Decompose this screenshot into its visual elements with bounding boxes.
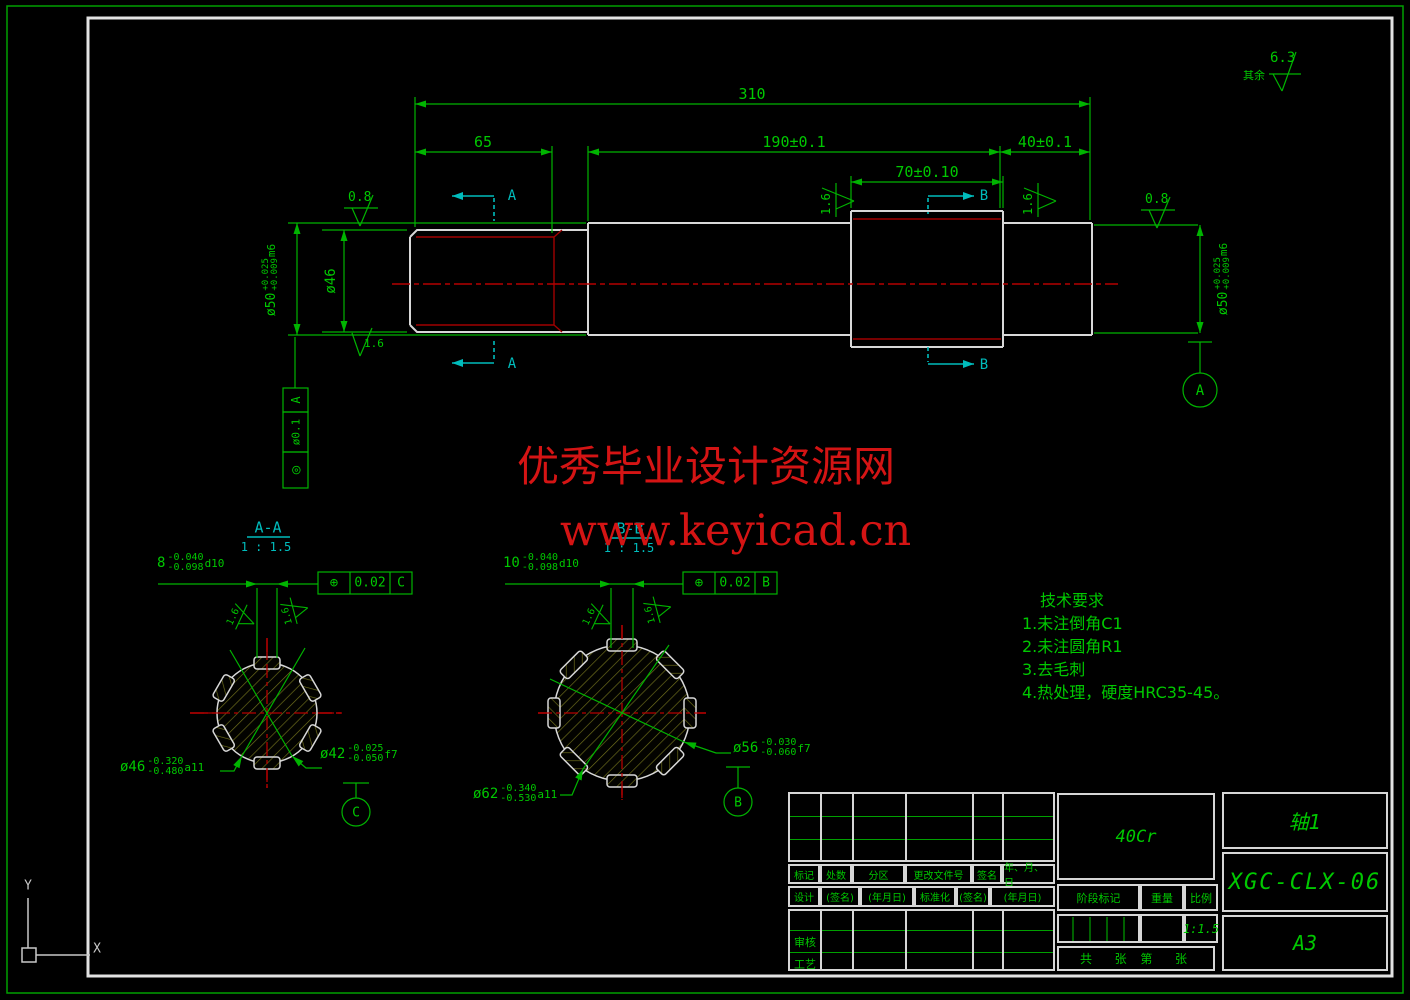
scale-header: 比例 [1184, 884, 1218, 911]
roughness-left-journal: 0.8 [348, 191, 371, 204]
tech-requirement-item: 1.未注倒角C1 [1022, 612, 1229, 635]
ucs-y-label: Y [24, 880, 32, 893]
tech-requirement-item: 3.去毛刺 [1022, 658, 1229, 681]
tech-requirements: 技术要求 1.未注倒角C1 2.未注圆角R1 3.去毛刺 4.热处理，硬度HRC… [1022, 589, 1229, 704]
weight-value [1140, 914, 1184, 943]
sheet-count-cell: 共 张 第 张 [1057, 946, 1215, 971]
section-a-fcf-value: 0.02 [354, 577, 385, 590]
section-a-dia-root: ø42 -0.025 -0.050 f7 [320, 744, 398, 764]
tech-requirements-title: 技术要求 [1040, 589, 1229, 612]
dia50-base: ø50 [265, 293, 278, 316]
section-b-fcf-datum: B [762, 577, 770, 590]
sign-col: (年月日) [860, 886, 914, 907]
default-roughness-value: 6.3 [1270, 51, 1295, 65]
concentricity-icon: ◎ [289, 466, 303, 474]
stage-mark-value [1057, 914, 1140, 943]
dim-dia50-left: ø50 +0.025 +0.009 m6 [262, 244, 280, 316]
rev-col-header: 年、月、日 [1002, 864, 1055, 884]
rev-col-header: 处数 [820, 864, 852, 884]
dim-dia50-right: ø50 +0.025 +0.009 m6 [1214, 243, 1232, 315]
dia50-tolerance: +0.025 +0.009 [262, 258, 280, 291]
section-a-title: A-A [254, 521, 281, 536]
section-b-keyway-dim: 10 -0.040 -0.098 d10 [503, 553, 579, 573]
roughness-symbol-section-b-2: 1.6 [641, 593, 674, 626]
section-b-dia-outer: ø62 -0.340 -0.530 a11 [473, 784, 557, 804]
datum-c-label: C [352, 807, 360, 820]
section-a-dia-outer: ø46 -0.320 -0.480 a11 [120, 757, 204, 777]
cut-label-b-bottom: B [980, 358, 988, 372]
material-cell: 40Cr [1057, 793, 1215, 880]
watermark-site-name: 优秀毕业设计资源网 [517, 433, 895, 494]
shaft-outline [410, 211, 1092, 347]
rev-col-header: 标记 [788, 864, 820, 884]
roughness-symbol-spline-right: 1.6 [1021, 183, 1056, 217]
datum-b-label: B [734, 797, 742, 810]
sign-col: (年月日) [990, 886, 1055, 907]
tech-requirement-item: 4.热处理，硬度HRC35-45。 [1022, 681, 1229, 704]
process-label: 工艺 [794, 956, 816, 972]
dim-overall-length: 310 [738, 87, 765, 102]
dim-dia46: ø46 [324, 268, 338, 293]
check-label: 审核 [794, 934, 816, 950]
roughness-symbol-spline-left: 1.6 [819, 183, 854, 217]
shaft-spline-lines [416, 219, 1001, 339]
part-name-cell: 轴1 [1222, 792, 1388, 849]
watermark-site-url: www.keyicad.cn [560, 506, 911, 556]
revision-table [788, 792, 1055, 862]
dim-left-segment: 65 [474, 135, 492, 150]
sign-col: 设计 [788, 886, 820, 907]
weight-header: 重量 [1140, 884, 1184, 911]
sheet-size-cell: A3 [1222, 915, 1388, 971]
rev-col-header: 签名 [972, 864, 1002, 884]
section-a-fcf-datum: C [397, 577, 405, 590]
stage-mark-header: 阶段标记 [1057, 884, 1140, 911]
approval-rows: 审核 工艺 [788, 909, 1055, 971]
cut-label-a-bottom: A [508, 357, 516, 371]
runout-datum-ref: A [290, 396, 302, 403]
position-icon: ⊕ [695, 576, 703, 590]
roughness-symbol-section-a-2: 1.6 [278, 594, 311, 627]
default-roughness-prefix: 其余 [1243, 70, 1265, 81]
ucs-x-label: X [93, 943, 101, 956]
roughness-right-journal: 0.8 [1145, 193, 1168, 206]
scale-value: 1:1.5 [1184, 914, 1218, 943]
section-a-keyway-dim: 8 -0.040 -0.098 d10 [157, 553, 224, 573]
sign-col: (签名) [956, 886, 990, 907]
svg-text:1.6: 1.6 [819, 193, 833, 215]
dim-spline-length: 70±0.10 [895, 165, 958, 180]
runout-value: ø0.1 [291, 419, 302, 446]
dim-right-segment: 40±0.1 [1018, 135, 1072, 150]
position-icon: ⊕ [330, 576, 338, 590]
svg-text:1.6: 1.6 [1021, 193, 1035, 215]
ucs-icon [22, 898, 90, 962]
section-b-dia-root: ø56 -0.030 -0.060 f7 [733, 738, 811, 758]
tech-requirement-item: 2.未注圆角R1 [1022, 635, 1229, 658]
datum-a-label: A [1196, 384, 1204, 398]
roughness-symbol-section-a-1: 1.6 [224, 599, 260, 635]
section-b-fcf-value: 0.02 [719, 577, 750, 590]
section-a-scale: 1 : 1.5 [241, 541, 292, 553]
cad-drawing-canvas: 1.6 1.6 1.6 1.6 1.6 1.6 其余 6.3 310 65 19… [0, 0, 1410, 1000]
sign-col: 标准化 [914, 886, 956, 907]
drawing-number-cell: XGC-CLX-06 [1222, 852, 1388, 912]
cut-label-a-top: A [508, 189, 516, 203]
roughness-bottom-left: 1.6 [364, 338, 384, 349]
rev-col-header: 分区 [852, 864, 905, 884]
sign-col: (签名) [820, 886, 860, 907]
dim-mid-segment: 190±0.1 [762, 135, 825, 150]
cut-label-b-top: B [980, 189, 988, 203]
rev-col-header: 更改文件号 [905, 864, 972, 884]
